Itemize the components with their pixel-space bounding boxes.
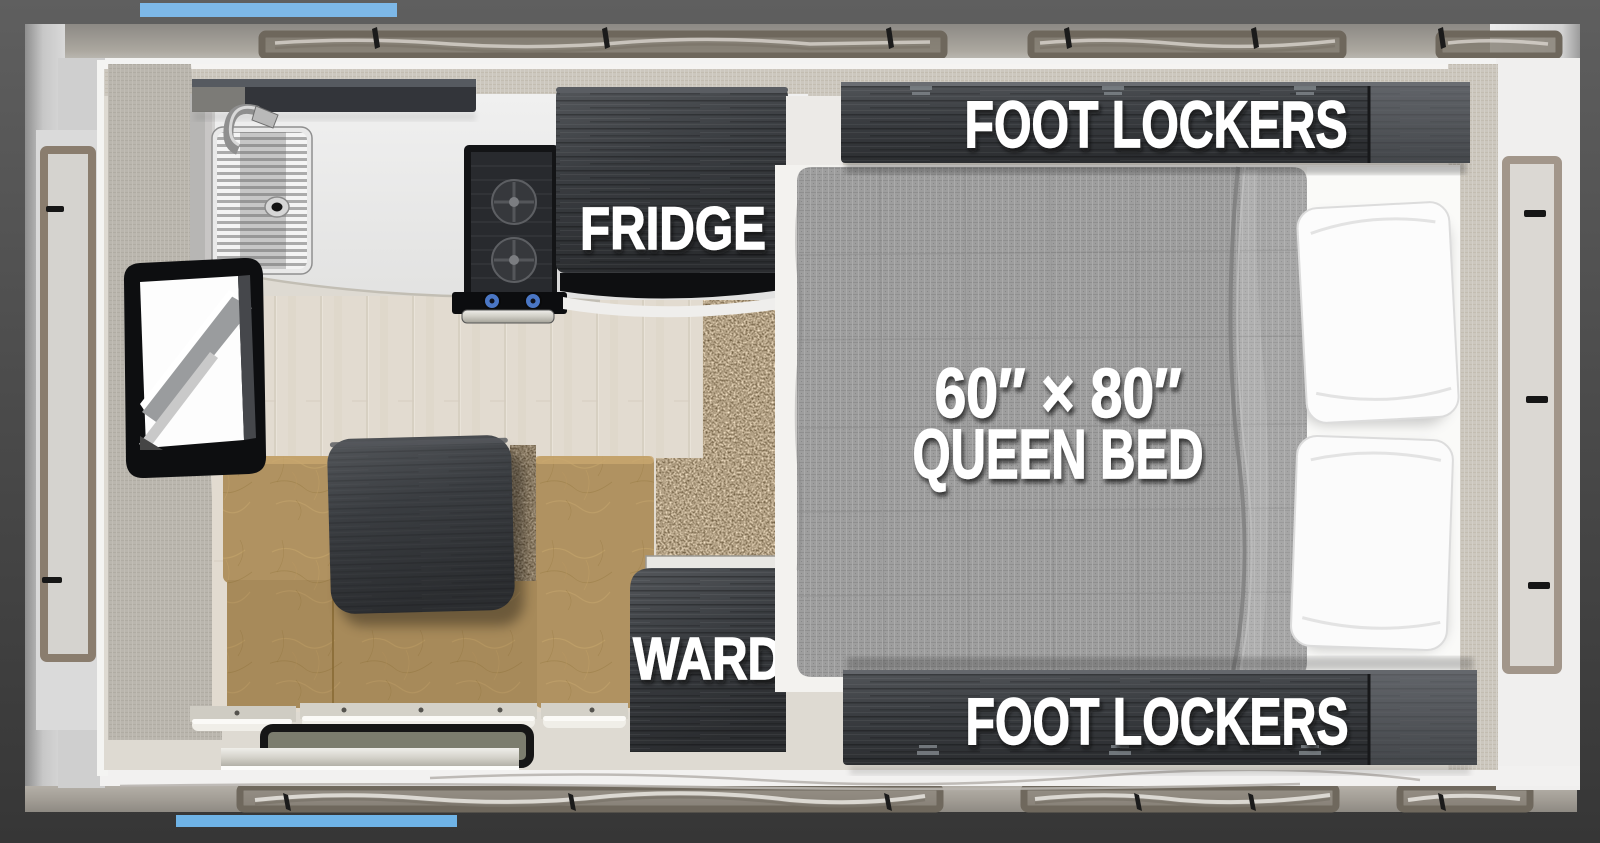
svg-text:WARD: WARD <box>633 626 783 692</box>
svg-text:FOOT LOCKERS: FOOT LOCKERS <box>965 87 1348 161</box>
svg-text:QUEEN BED: QUEEN BED <box>913 415 1204 493</box>
svg-text:FOOT LOCKERS: FOOT LOCKERS <box>966 684 1349 758</box>
svg-text:FRIDGE: FRIDGE <box>580 195 766 262</box>
